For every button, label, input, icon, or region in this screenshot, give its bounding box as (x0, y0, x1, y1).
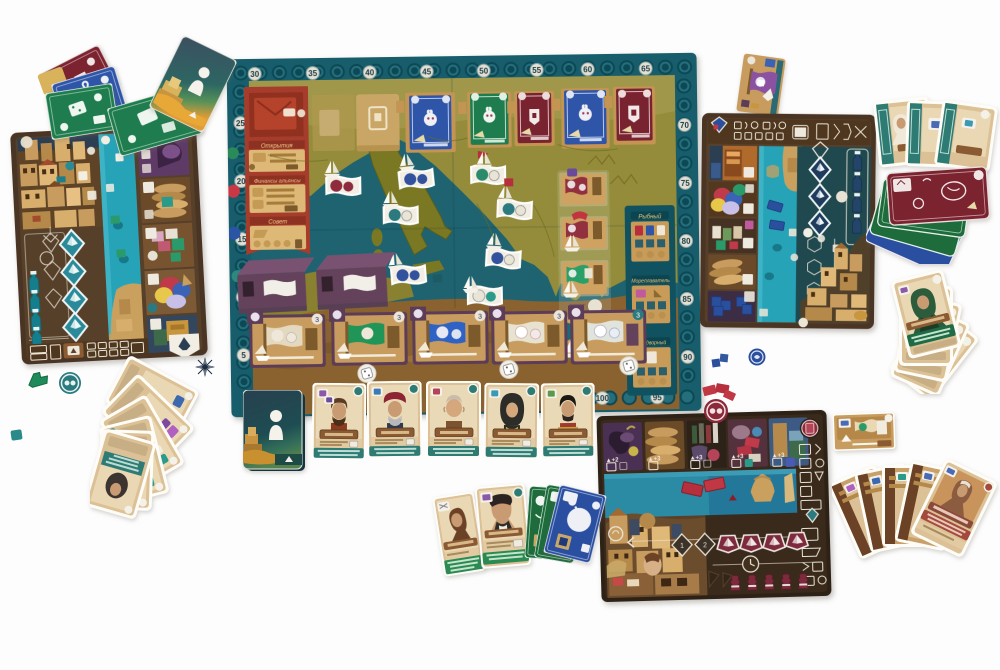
svg-text:20: 20 (237, 177, 247, 186)
svg-text:2: 2 (703, 542, 707, 549)
svg-text:Открытия: Открытия (261, 143, 294, 149)
svg-text:Совет: Совет (268, 219, 287, 225)
svg-text:65: 65 (641, 64, 651, 73)
svg-text:50: 50 (479, 67, 489, 76)
svg-text:75: 75 (681, 179, 691, 188)
svg-text:25: 25 (236, 119, 246, 128)
svg-text:40: 40 (365, 68, 375, 77)
svg-text:1: 1 (680, 543, 684, 550)
svg-text:30: 30 (250, 70, 260, 79)
svg-text:55: 55 (532, 66, 542, 75)
svg-text:Мореплаватель: Мореплаватель (631, 278, 670, 285)
svg-text:60: 60 (583, 65, 593, 74)
svg-text:85: 85 (682, 295, 692, 304)
svg-text:3: 3 (557, 314, 561, 321)
svg-text:90: 90 (683, 353, 693, 362)
svg-text:5: 5 (241, 351, 246, 360)
svg-text:3: 3 (636, 313, 640, 320)
svg-text:35: 35 (308, 69, 318, 78)
svg-text:3: 3 (397, 315, 401, 322)
svg-text:70: 70 (680, 121, 690, 130)
svg-text:3: 3 (478, 314, 482, 321)
svg-text:45: 45 (422, 67, 432, 76)
svg-text:Финансы альянсы: Финансы альянсы (254, 178, 301, 185)
svg-text:100: 100 (596, 394, 610, 403)
svg-text:3: 3 (315, 317, 319, 324)
svg-text:80: 80 (682, 237, 692, 246)
svg-text:Рыбный: Рыбный (638, 213, 662, 220)
